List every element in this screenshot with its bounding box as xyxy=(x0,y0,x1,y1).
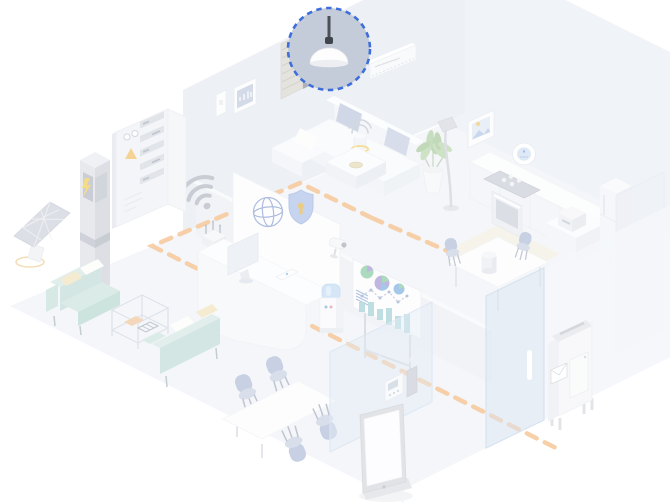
home-button xyxy=(382,485,385,488)
door-handle xyxy=(527,350,532,380)
smart-home-illustration xyxy=(0,0,670,503)
dining-speaker xyxy=(482,252,497,275)
glass-door xyxy=(486,268,544,448)
device-highlight[interactable] xyxy=(288,8,370,90)
light-switch xyxy=(216,90,226,117)
electrical-panel xyxy=(112,109,186,229)
bowl xyxy=(350,162,363,168)
mailbox xyxy=(548,320,592,430)
solar-panel xyxy=(14,202,70,267)
water-cooler xyxy=(320,284,343,333)
thermostat-dial xyxy=(513,143,536,165)
scene-canvas xyxy=(0,0,670,503)
panel-door xyxy=(168,109,186,212)
